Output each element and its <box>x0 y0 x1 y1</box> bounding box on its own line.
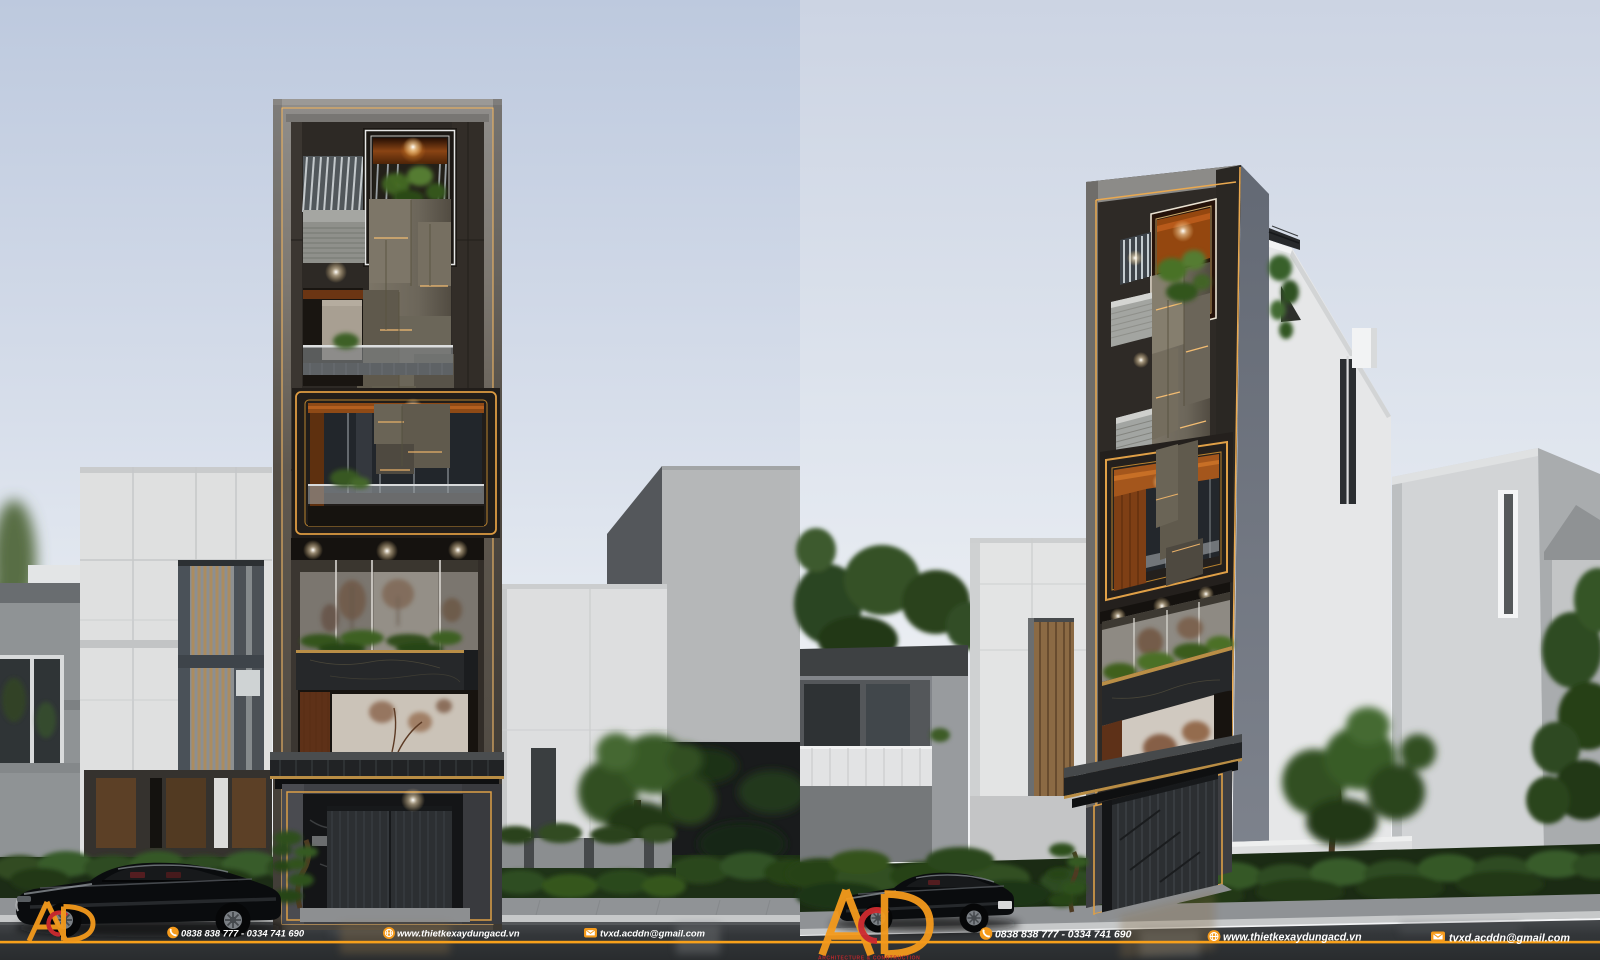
svg-text:www.thietkexaydungacd.vn: www.thietkexaydungacd.vn <box>1223 932 1362 944</box>
svg-text:0838 838 777 - 0334 741 690: 0838 838 777 - 0334 741 690 <box>995 930 1132 941</box>
svg-text:ARCHITECTURE & CONSTRUCTION: ARCHITECTURE & CONSTRUCTION <box>818 956 920 960</box>
svg-text:www.thietkexaydungacd.vn: www.thietkexaydungacd.vn <box>397 928 520 939</box>
svg-text:tvxd.acddn@gmail.com: tvxd.acddn@gmail.com <box>600 928 705 939</box>
svg-text:tvxd.acddn@gmail.com: tvxd.acddn@gmail.com <box>1449 933 1570 945</box>
svg-text:0838 838 777 - 0334 741 690: 0838 838 777 - 0334 741 690 <box>181 928 305 939</box>
